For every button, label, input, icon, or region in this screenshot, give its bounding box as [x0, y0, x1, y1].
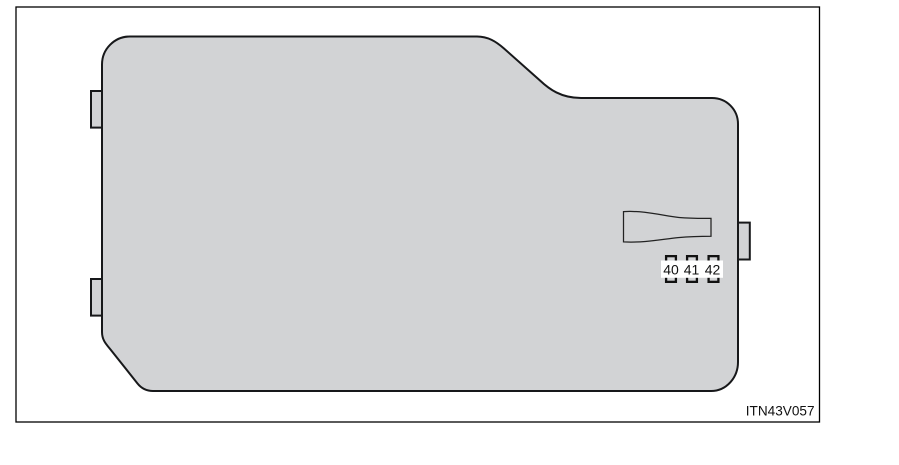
svg-text:42: 42: [705, 261, 721, 277]
svg-text:ITN43V057: ITN43V057: [746, 404, 815, 419]
svg-text:41: 41: [684, 261, 700, 277]
svg-text:40: 40: [663, 261, 679, 277]
